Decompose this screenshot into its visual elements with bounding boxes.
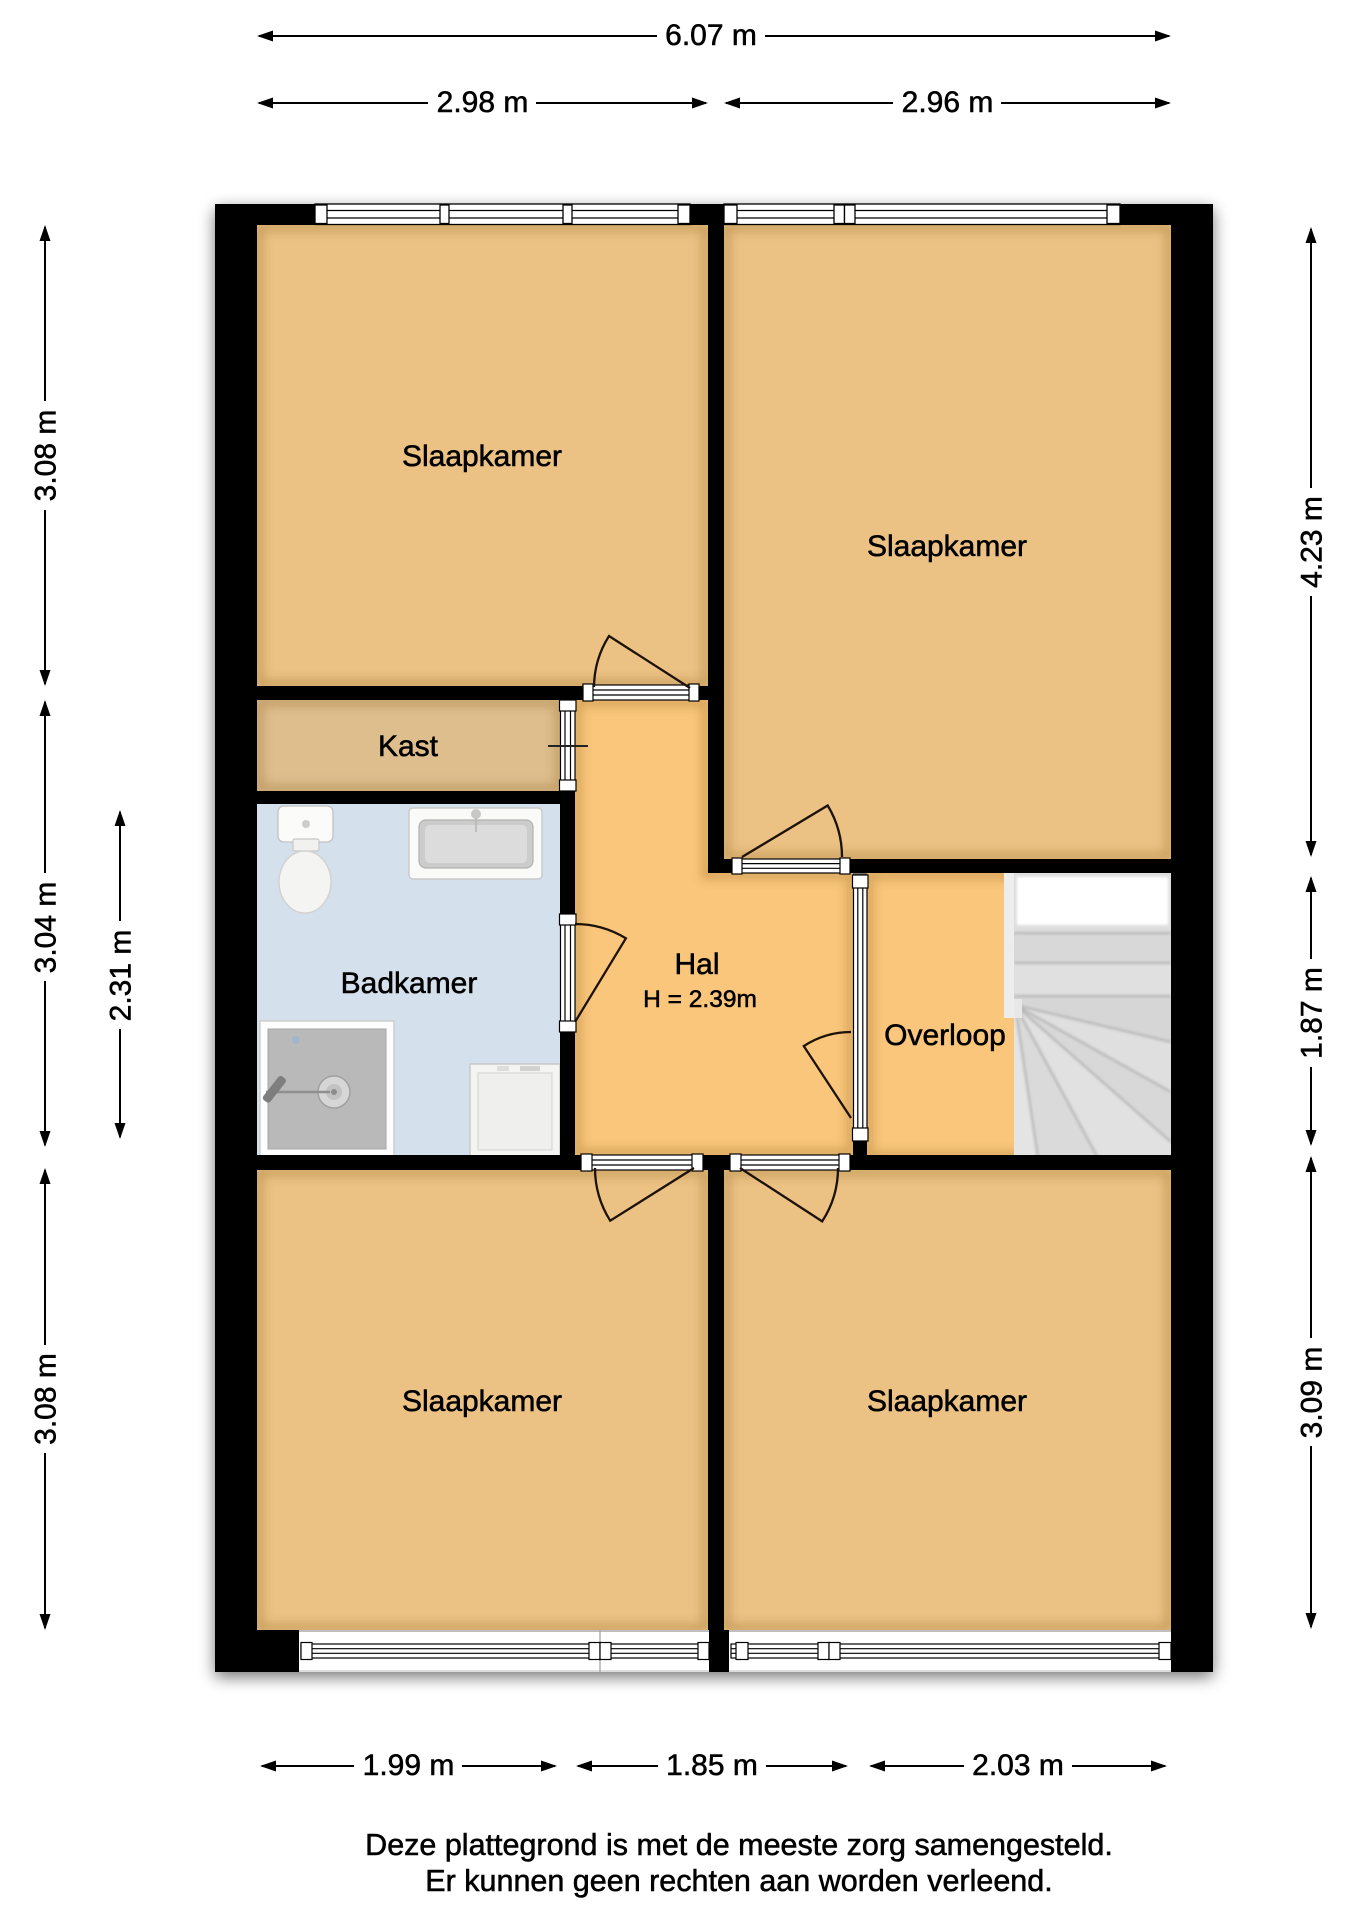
svg-text:Hal: Hal [674,948,719,981]
svg-text:2.96 m: 2.96 m [902,86,994,119]
svg-text:3.08 m: 3.08 m [30,1353,63,1445]
svg-text:Kast: Kast [378,730,439,763]
svg-text:2.03 m: 2.03 m [972,1749,1064,1782]
svg-text:Er kunnen geen rechten aan wor: Er kunnen geen rechten aan worden verlee… [425,1864,1052,1898]
svg-text:2.31 m: 2.31 m [105,930,138,1022]
svg-text:Slaapkamer: Slaapkamer [867,530,1027,563]
svg-text:Badkamer: Badkamer [341,967,478,1000]
svg-text:H = 2.39m: H = 2.39m [643,986,757,1013]
svg-text:6.07 m: 6.07 m [665,19,757,52]
svg-text:1.85 m: 1.85 m [666,1749,758,1782]
svg-text:3.04 m: 3.04 m [30,882,63,974]
svg-text:Deze plattegrond is met de mee: Deze plattegrond is met de meeste zorg s… [365,1828,1113,1862]
svg-text:2.98 m: 2.98 m [437,86,529,119]
svg-text:Slaapkamer: Slaapkamer [402,440,562,473]
svg-text:Slaapkamer: Slaapkamer [867,1385,1027,1418]
svg-text:1.87 m: 1.87 m [1296,967,1329,1059]
svg-text:4.23 m: 4.23 m [1296,496,1329,588]
svg-text:3.08 m: 3.08 m [30,410,63,502]
svg-text:Slaapkamer: Slaapkamer [402,1385,562,1418]
svg-text:Overloop: Overloop [884,1019,1006,1052]
svg-text:3.09 m: 3.09 m [1296,1347,1329,1439]
svg-text:1.99 m: 1.99 m [363,1749,455,1782]
